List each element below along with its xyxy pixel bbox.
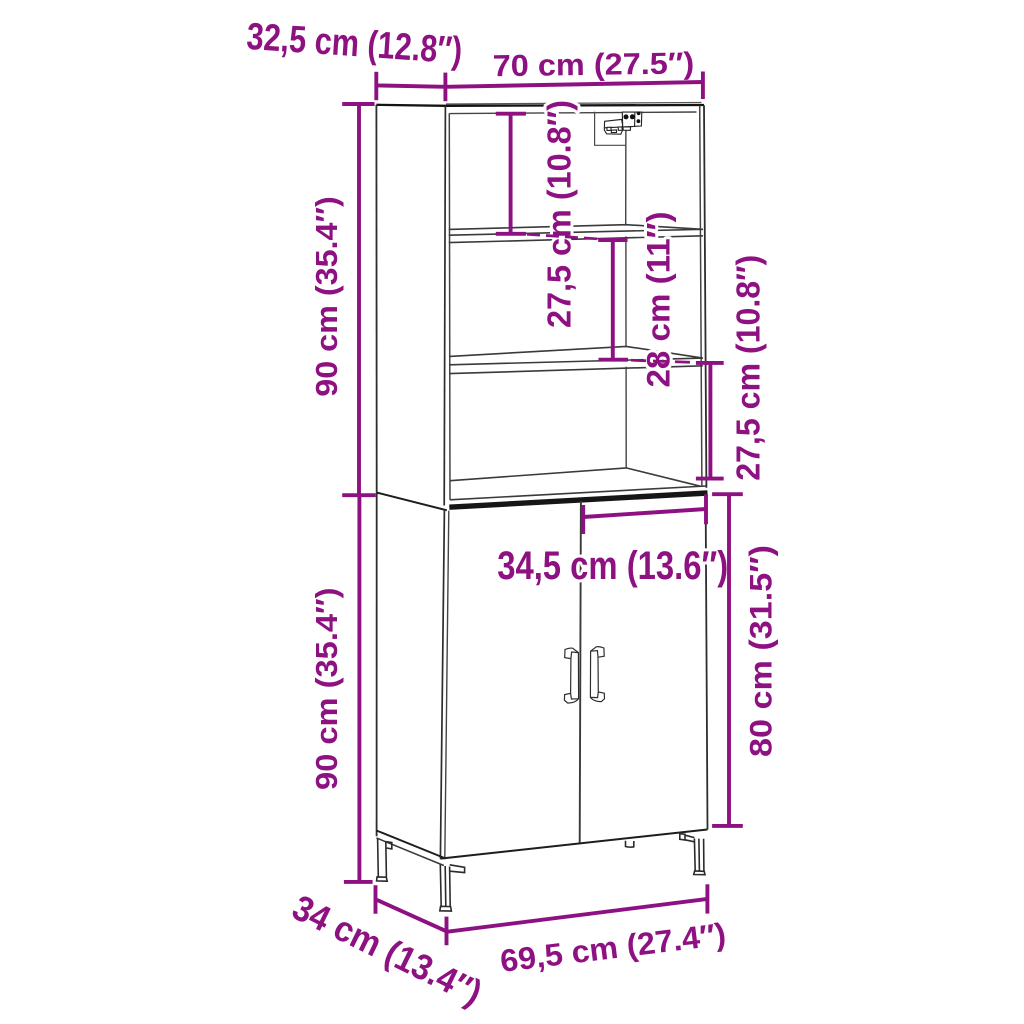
svg-text:27,5 cm (10.8″): 27,5 cm (10.8″) — [541, 100, 578, 328]
svg-text:90 cm (35.4″): 90 cm (35.4″) — [309, 587, 344, 790]
svg-text:34,5 cm (13.6″): 34,5 cm (13.6″) — [497, 544, 728, 588]
svg-text:27,5 cm (10.8″): 27,5 cm (10.8″) — [729, 255, 766, 481]
svg-text:70 cm (27.5″): 70 cm (27.5″) — [492, 46, 694, 83]
svg-text:90 cm (35.4″): 90 cm (35.4″) — [309, 196, 344, 397]
svg-text:80 cm (31.5″): 80 cm (31.5″) — [743, 545, 779, 757]
